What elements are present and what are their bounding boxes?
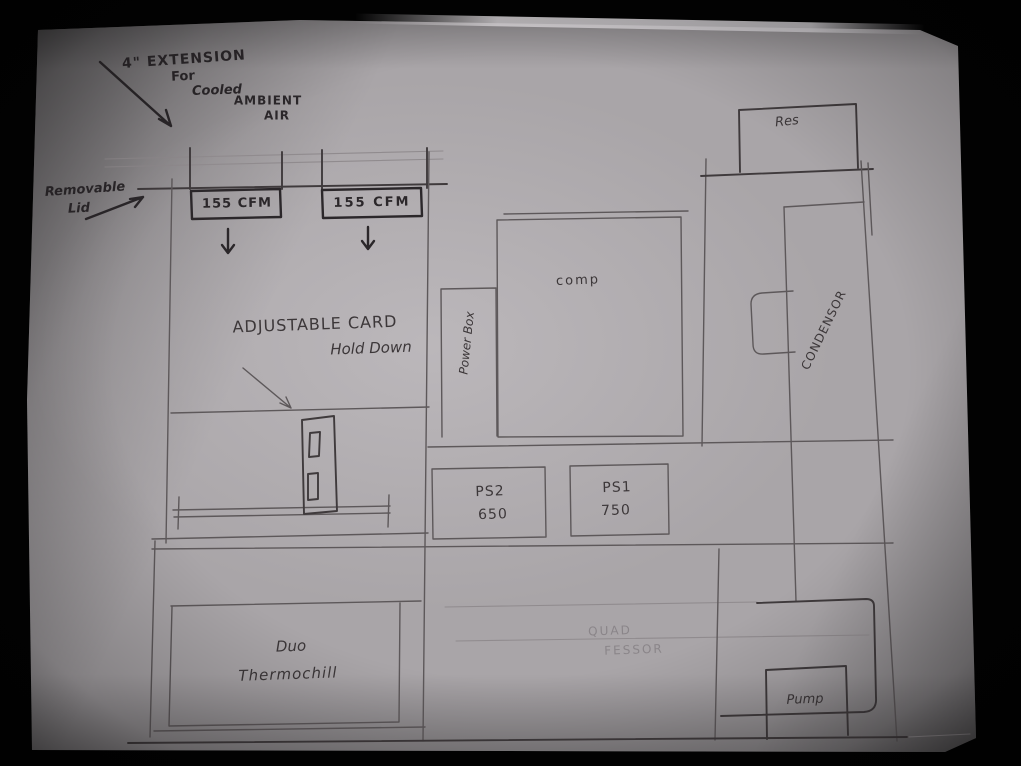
removable-lid-note-line2: Lid bbox=[68, 202, 91, 217]
ps2-label-line2: 650 bbox=[478, 507, 508, 523]
base-lines bbox=[128, 734, 970, 743]
extension-note-line2: For bbox=[171, 70, 195, 85]
comp-box bbox=[497, 211, 688, 437]
ps1-box bbox=[570, 464, 669, 536]
card-holddown-arrow bbox=[243, 368, 291, 408]
card-holddown-note-line2: Hold Down bbox=[330, 340, 412, 359]
ps1-label-line2: 750 bbox=[601, 503, 631, 519]
pump-label: Pump bbox=[786, 693, 823, 708]
extension-note-line5: AIR bbox=[264, 110, 290, 123]
left-enclosure bbox=[152, 152, 893, 741]
condensor-outline bbox=[751, 202, 864, 601]
res-box bbox=[739, 104, 858, 172]
ps2-label-line1: PS2 bbox=[475, 484, 505, 500]
duo-thermochill-box bbox=[169, 601, 421, 726]
removable-lid-arrow bbox=[86, 197, 143, 219]
sketch-lines bbox=[0, 0, 1021, 766]
duct-extension-lines bbox=[105, 148, 443, 189]
quad-fessor-label-line1: QUAD bbox=[588, 624, 632, 638]
fan-left-label: 155 CFM bbox=[202, 197, 272, 212]
fan-right-label: 155 CFM bbox=[333, 196, 410, 211]
quad-fessor-label-line2: FESSOR bbox=[604, 643, 664, 658]
quad-fessor-lines bbox=[445, 602, 869, 641]
extension-note-line4: AMBIENT bbox=[234, 95, 302, 108]
photo-of-sketch: 4" EXTENSION For Cooled AMBIENT AIR Remo… bbox=[0, 0, 1021, 766]
res-label: Res bbox=[774, 114, 799, 130]
ps1-label-line1: PS1 bbox=[602, 480, 632, 496]
right-section-frame bbox=[701, 161, 897, 741]
ps2-box bbox=[432, 467, 546, 539]
radiator-label-line2: Thermochill bbox=[238, 665, 338, 684]
comp-label: comp bbox=[556, 273, 600, 288]
card-holddown-bracket bbox=[302, 416, 337, 514]
extension-arrow bbox=[100, 62, 171, 126]
airflow-arrows bbox=[222, 227, 374, 253]
radiator-label-line1: Duo bbox=[276, 639, 307, 656]
